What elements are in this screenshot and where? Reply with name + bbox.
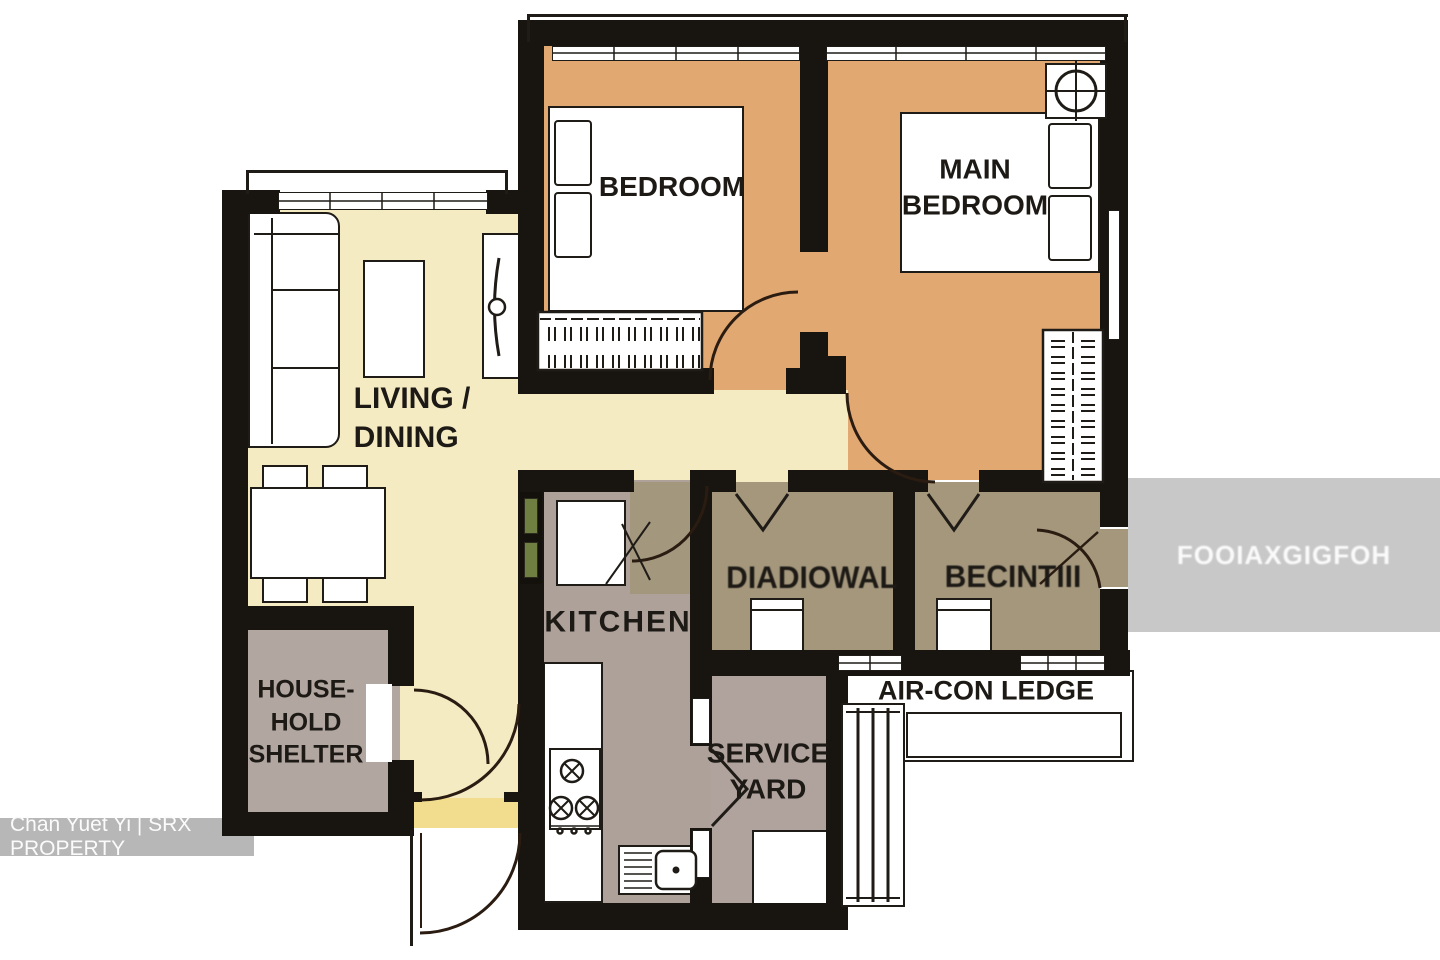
bath2-door-marker [928, 494, 979, 530]
entrance-door-arc [420, 833, 520, 933]
bath2-label: BECINTIII [945, 556, 1082, 597]
aircon-ladder [842, 704, 904, 906]
kitchen-label: KITCHEN [544, 603, 691, 642]
living-label-line2: DINING [354, 421, 459, 454]
ceiling-point-icon [1046, 61, 1106, 121]
bedroom-door-arc [710, 292, 798, 380]
service-yard-label-line2: YARD [730, 774, 807, 805]
bedroom-label: BEDROOM [599, 169, 745, 205]
living-label-line1: LIVING / [354, 382, 471, 415]
tv-icon [489, 258, 505, 356]
service-yard-label: SERVICEYARD [707, 736, 829, 809]
bath1-label: DIADIOWAL [726, 557, 898, 598]
sofa-lines [254, 218, 338, 444]
main-bedroom-door-arc [847, 393, 935, 482]
plan-linework [0, 0, 1440, 960]
sink-icon [624, 851, 696, 889]
shelter-label-line2: HOLD [271, 708, 342, 736]
main-bedroom-label-line1: MAIN [939, 154, 1011, 185]
bath1-door-marker [736, 494, 788, 530]
bifold-door-marker [606, 522, 650, 584]
shelter-label-line1: HOUSE- [257, 675, 354, 703]
floor-plan: FOOIAXGIGFOH Chan Yuet Yi | SRX PROPERTY [0, 0, 1440, 960]
door-swing-arcs [414, 292, 1100, 933]
kitchen-door-arc [632, 486, 707, 561]
hallway-door-arc [421, 704, 519, 800]
service-yard-label-line1: SERVICE [707, 738, 829, 769]
living-dining-label: LIVING /DINING [354, 379, 471, 457]
shelter-label-line3: SHELTER [249, 740, 364, 768]
shelter-door-arc [414, 690, 488, 764]
aircon-ledge-label: AIR-CON LEDGE [878, 673, 1094, 708]
wardrobe [1043, 330, 1103, 482]
main-bedroom-label: MAINBEDROOM [902, 152, 1048, 225]
household-shelter-label: HOUSE-HOLDSHELTER [249, 673, 364, 771]
main-bedroom-label-line2: BEDROOM [902, 190, 1048, 221]
stove-burners [549, 760, 601, 834]
wardrobe [538, 312, 702, 370]
